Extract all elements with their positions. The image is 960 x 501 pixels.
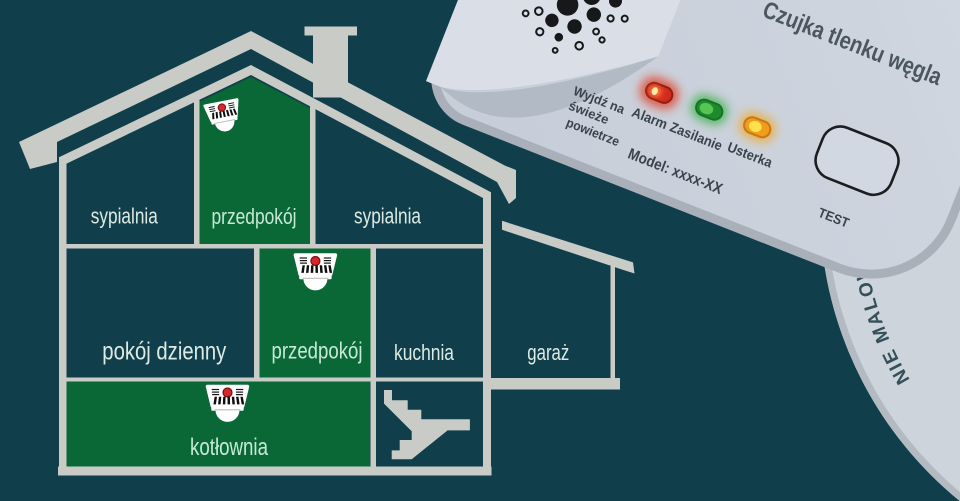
svg-text:kuchnia: kuchnia [394,340,455,365]
svg-text:sypialnia: sypialnia [354,204,422,229]
svg-text:przedpokój: przedpokój [212,204,297,229]
svg-text:przedpokój: przedpokój [272,338,363,364]
svg-text:sypialnia: sypialnia [91,204,159,229]
svg-text:kotłownia: kotłownia [190,434,269,461]
svg-text:pokój dzienny: pokój dzienny [102,337,226,365]
svg-text:garaż: garaż [527,340,569,365]
